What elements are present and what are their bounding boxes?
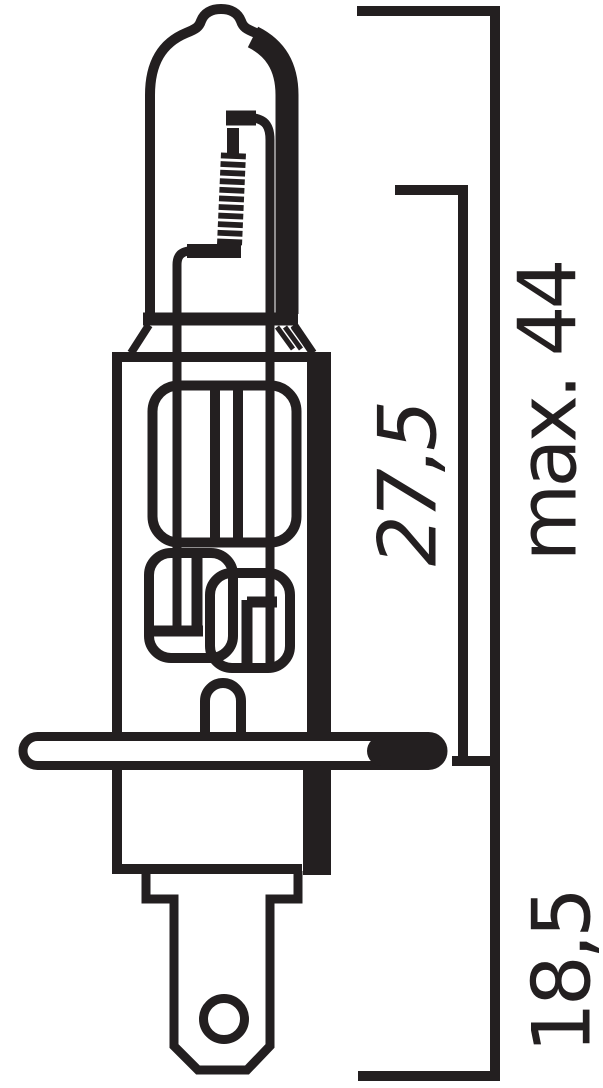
metal-base xyxy=(112,352,331,740)
base-right-shading xyxy=(307,352,331,737)
pinch-transition xyxy=(131,325,313,353)
dimension-glass-length: 27,5 xyxy=(362,190,501,761)
dimension-base-length: 18,5 xyxy=(358,891,603,1076)
dim-max44-label: max. 44 xyxy=(502,262,595,561)
flange xyxy=(23,736,444,766)
technical-drawing-page: max. 44 27,5 18,5 xyxy=(0,0,603,1088)
dim-185-label: 18,5 xyxy=(516,891,603,1053)
bulb-technical-drawing: max. 44 27,5 18,5 xyxy=(0,0,603,1088)
bulb-glass-envelope xyxy=(143,9,298,319)
pinch-left-slant xyxy=(131,325,149,353)
blade-hole xyxy=(204,999,245,1040)
dim-275-label: 27,5 xyxy=(362,404,455,566)
skirt-right-shading xyxy=(303,766,331,875)
contact-blade xyxy=(112,869,302,1070)
flange-right-shading xyxy=(367,736,444,766)
skirt-face xyxy=(112,766,331,874)
base-skirt xyxy=(112,766,331,875)
filament-coil xyxy=(217,153,246,246)
